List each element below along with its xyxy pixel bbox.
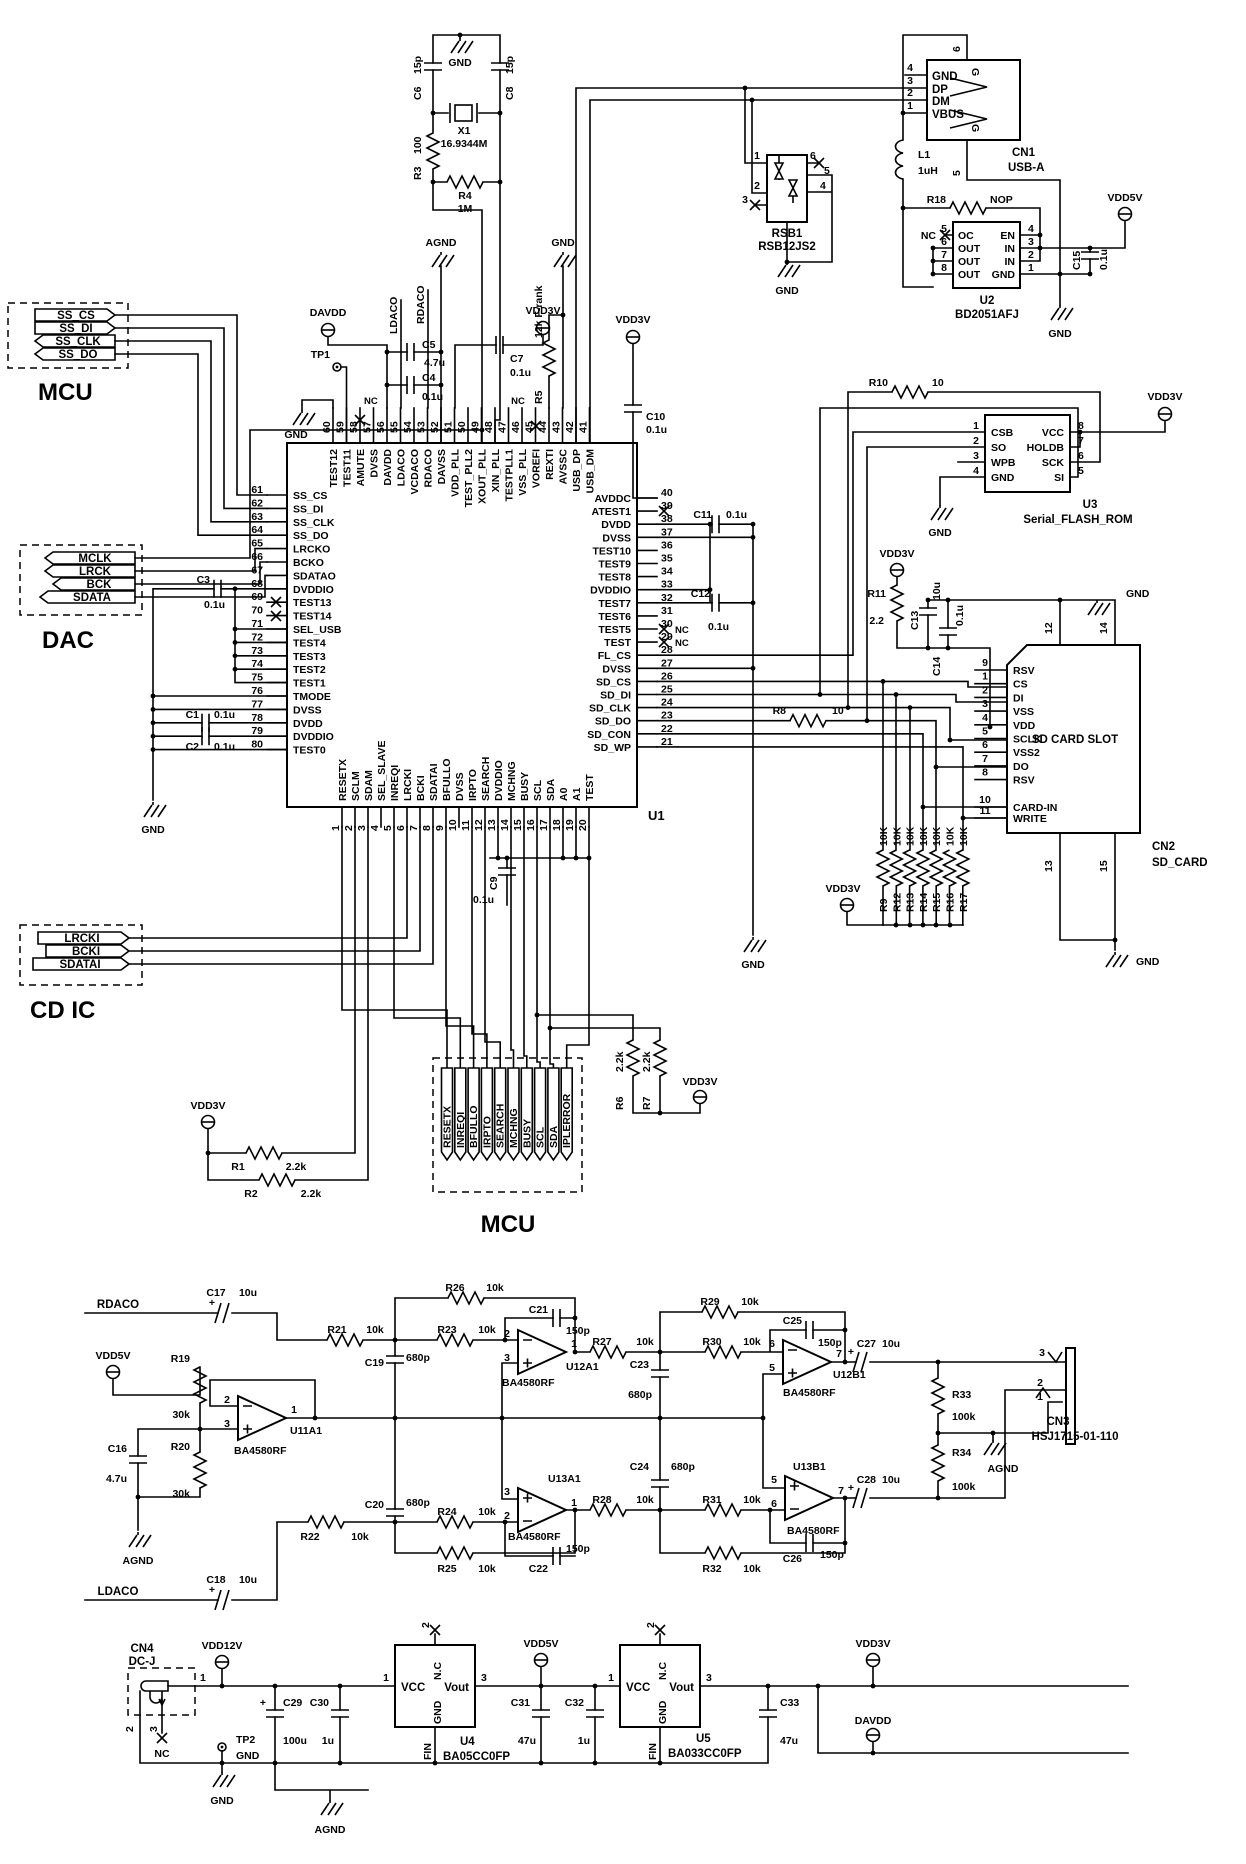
pin-name: SS_DO (293, 530, 329, 542)
ref-c16: C16 (108, 1443, 127, 1455)
pin-number: 56 (375, 421, 387, 433)
val-r18: NOP (990, 194, 1013, 206)
ref-r34: R34 (952, 1447, 971, 1459)
ref-r3: R3 (412, 166, 424, 180)
pin-name: RESETX (337, 759, 349, 801)
pin-name: AVSSC (558, 449, 570, 485)
agnd-label: AGND (426, 237, 457, 249)
pin-number: 6 (982, 739, 988, 751)
pin-number: 14 (499, 819, 511, 831)
pin-number: 11 (979, 805, 990, 817)
cap-c1 (202, 714, 209, 732)
pin-number: 17 (538, 819, 550, 831)
pullup-ref: R9 (878, 898, 890, 912)
val-r2: 2.2k (301, 1188, 322, 1200)
cap-c5 (407, 343, 414, 361)
pin-name: TEST2 (293, 664, 326, 676)
ref-r21: R21 (327, 1324, 346, 1336)
plus-c17: + (209, 1297, 215, 1309)
pullup-ref: R15 (931, 893, 943, 912)
val-r24: 10k (478, 1506, 496, 1518)
net-rdaco: RDACO (415, 286, 427, 325)
nc-label: NC (511, 396, 525, 407)
vdd3v-label: VDD3V (190, 1100, 225, 1112)
u1-bottom-pins: 1RESETX2SCLM3SDAM4SEL_SLAVE5INREQI6LRCKI… (330, 741, 596, 832)
ref-r2: R2 (244, 1188, 258, 1200)
ref-c20: C20 (365, 1499, 384, 1511)
pin-number: 42 (564, 421, 576, 433)
val-c28: 10u (882, 1474, 900, 1486)
pin-name: XIN_PLL (490, 448, 502, 492)
gnd-symbol (144, 802, 166, 817)
cn4-pin2: 2 (124, 1726, 136, 1732)
ref-r10: R10 (869, 377, 888, 389)
rsb1-body (767, 155, 807, 222)
ref-c24: C24 (630, 1461, 649, 1473)
agnd-symbol (432, 252, 454, 267)
tag-signal: IPLERROR (561, 1093, 573, 1148)
pin-number: 6 (771, 1498, 777, 1510)
pullup-resistor (930, 850, 942, 886)
pin-number: 1 (571, 1338, 577, 1350)
pin-name: TEST5 (598, 624, 631, 636)
val-r27: 10k (636, 1336, 654, 1348)
ref-r22: R22 (300, 1531, 319, 1543)
pin-name: TEST4 (293, 637, 326, 649)
plus-c28: + (848, 1482, 854, 1494)
pin-name: VDD (1013, 720, 1036, 732)
u1-right-pins: 40AVDDC39ATEST138DVDD37DVSS36TEST1035TES… (587, 487, 673, 754)
pin-name: REXTI (544, 449, 556, 480)
gnd-symbol (213, 1772, 235, 1787)
pullup-resistor (890, 850, 902, 886)
pin-number: 5 (382, 825, 394, 831)
opamp-ref: U13B1 (793, 1461, 826, 1473)
val-c7: 0.1u (510, 367, 531, 379)
cap-c3 (214, 580, 221, 598)
pullup-value: 10K (878, 826, 890, 846)
cap-c12 (712, 594, 719, 612)
resistor-r7 (654, 1040, 666, 1076)
pin-number: 13 (486, 819, 498, 831)
pullup-resistor (944, 850, 956, 886)
pin-name: MCHNG (506, 761, 518, 801)
pin-number: 4 (973, 465, 979, 477)
pin-name: DI (1013, 692, 1024, 704)
sd-pullup-array: 10KR910KR1210KR1310KR1410KR1510KR1610KR1… (877, 826, 970, 925)
pin-number: 40 (661, 487, 673, 499)
vdd3v-label: VDD3V (879, 548, 914, 560)
nc-label: NC (921, 230, 937, 242)
pin-number: 54 (402, 421, 414, 433)
resistor-r1 (246, 1147, 282, 1159)
pin-name: SEL_SLAVE (376, 741, 388, 802)
pin-name: SD_CON (587, 729, 631, 741)
tag-signal: RESETX (442, 1106, 454, 1148)
val-c4: 0.1u (422, 391, 443, 403)
pin-name: SCLM (350, 771, 362, 801)
ref-r30: R30 (702, 1336, 721, 1348)
tp1-testpoint (333, 363, 341, 371)
ref-c1: C1 (186, 709, 200, 721)
vdd3v-label: VDD3V (855, 1638, 890, 1650)
opamp-part: BA4580RF (783, 1387, 836, 1399)
tag-signal: SCL (535, 1126, 547, 1148)
u1-right-circuits: C11 0.1u C12 0.1u GND R8 10 R10 10 (657, 377, 1165, 971)
pin-number: 46 (510, 421, 522, 433)
tag-signal: BFULLO (468, 1105, 480, 1148)
pin-name: TEST13 (293, 597, 332, 609)
pin-number: 1 (1028, 262, 1034, 274)
pin-name: TEST10 (592, 545, 631, 557)
pullup-ref: R13 (905, 893, 917, 912)
resistor-r4 (447, 176, 483, 188)
pullup-value: 10K (918, 826, 930, 846)
cap-c22 (553, 1547, 560, 1565)
gnd-label: GND (448, 57, 472, 69)
cn1-gnd: GND (932, 71, 958, 83)
pin-number: 52 (429, 421, 441, 433)
ref-r28: R28 (592, 1494, 611, 1506)
vdd5v-flag (1119, 208, 1132, 221)
val-r11: 2.2 (869, 615, 884, 627)
cap-c33 (759, 1710, 777, 1717)
pin-number: 49 (470, 421, 482, 433)
ref-c26: C26 (783, 1553, 802, 1565)
ref-l1: L1 (918, 149, 930, 161)
u5-nc: N.C (657, 1662, 669, 1681)
val-c32: 1u (578, 1735, 590, 1747)
u5-n3: 3 (706, 1672, 712, 1684)
val-c6: 15p (412, 56, 424, 74)
cap-c20 (386, 1509, 404, 1516)
ref-r6: R6 (614, 1096, 626, 1110)
plus-c18: + (209, 1584, 215, 1596)
pin-name: TEST7 (598, 598, 631, 610)
tag-signal: IRPTO (481, 1116, 493, 1148)
pin-number: 5 (769, 1362, 775, 1374)
ref-c6: C6 (412, 86, 424, 100)
pin-name: TEST0 (293, 745, 326, 757)
pullup-value: 10K (958, 826, 970, 846)
resistor-r20 (194, 1452, 206, 1488)
u4-nc: N.C (432, 1662, 444, 1681)
pin-number: 2 (973, 435, 979, 447)
opamp-u13b1: 5 6 7 U13B1 BA4580RF (771, 1461, 844, 1537)
val-l1: 1uH (918, 165, 938, 177)
cap-c32 (586, 1710, 604, 1717)
cn1-pin5: 5 (951, 170, 963, 176)
pin-number: 58 (348, 421, 360, 433)
val-c18: 10u (239, 1574, 257, 1586)
cn1-pin4: 4 (907, 62, 913, 74)
val-x1: 16.9344M (441, 138, 488, 150)
pin-name: SS_DI (293, 503, 323, 515)
val-c12: 0.1u (708, 621, 729, 633)
agnd-symbol (984, 1440, 1006, 1455)
ref-r8: R8 (773, 705, 787, 717)
pin-name: ATEST1 (592, 506, 632, 518)
resistor-r33 (932, 1378, 944, 1414)
val-c33: 47u (780, 1735, 798, 1747)
pullup-ref: R12 (891, 893, 903, 912)
pin-name: IN (1005, 256, 1016, 268)
pin-name: VCDACO (409, 449, 421, 495)
ref-r29: R29 (700, 1296, 719, 1308)
gnd-label: GND (741, 959, 765, 971)
val-c11: 0.1u (726, 509, 747, 521)
val-c24: 680p (671, 1461, 695, 1473)
opamp-part: BA4580RF (508, 1531, 561, 1543)
mcu-top-connector: SS_CS SS_DI SS_CLK SS_DO MCU (8, 303, 267, 535)
cn2-pin14: 14 (1098, 622, 1110, 634)
u4-ref: U4 (460, 1736, 475, 1748)
ref-x1: X1 (458, 125, 471, 137)
pin-name: CSB (991, 427, 1014, 439)
pin-name: SO (991, 442, 1006, 454)
val-r30: 10k (743, 1336, 761, 1348)
tag-ss-do: SS_DO (59, 349, 98, 361)
nc-x-cn4 (157, 1733, 167, 1743)
cn1-dm: DM (932, 96, 950, 108)
pin-number: 34 (661, 566, 673, 578)
cap-c29 (266, 1710, 284, 1717)
pullup-value: 10K (905, 826, 917, 846)
val-c26: 150p (820, 1549, 844, 1561)
ref-c15: C15 (1071, 251, 1083, 270)
pin-name: SEL_USB (293, 624, 342, 636)
rsb1-diodes (775, 155, 797, 203)
val-c8: 15p (504, 56, 516, 74)
pin-name: DVDDIO (590, 585, 631, 597)
ref-c28: C28 (857, 1474, 876, 1486)
u4-vout: Vout (444, 1682, 469, 1694)
val-r8: 10 (832, 705, 844, 717)
rsb1-pin3: 3 (742, 194, 748, 206)
pin-name: LDACO (396, 449, 408, 486)
pin-number: 70 (251, 605, 263, 617)
val-r26: 10k (486, 1282, 504, 1294)
tag-lrcki: LRCKI (64, 933, 99, 945)
u4-vcc: VCC (401, 1682, 425, 1694)
cn1-shell-g-bottom: G (969, 124, 981, 132)
pin-number: 6 (1078, 450, 1084, 462)
gnd-label: GND (1048, 328, 1072, 340)
pin-name: DAVSS (436, 449, 448, 484)
ref-c12: C12 (691, 588, 710, 600)
u5-vcc: VCC (626, 1682, 650, 1694)
cdic-connector: LRCKI BCKI SDATAI CD IC (20, 827, 433, 1024)
pullup-resistor (904, 850, 916, 886)
pin-number: 51 (443, 421, 455, 433)
ref-c33: C33 (780, 1697, 799, 1709)
davdd-label: DAVDD (855, 1715, 892, 1727)
tag-lrck: LRCK (79, 566, 112, 578)
ref-c5: C5 (422, 339, 436, 351)
pin-name: SD_WP (594, 742, 631, 754)
plus-c27: + (848, 1346, 854, 1358)
cap-c21 (553, 1309, 560, 1327)
nc-label: NC (675, 638, 689, 649)
gnd-label: GND (1136, 956, 1160, 968)
cn1-shell-g-top: G (969, 68, 981, 76)
cn1-part: USB-A (1008, 162, 1044, 174)
vdd3v-flag (627, 331, 640, 344)
opamp-ref: U13A1 (548, 1473, 581, 1485)
opamp-part: BA4580RF (502, 1377, 555, 1389)
pin-name: HOLDB (1027, 442, 1065, 454)
gnd-label: GND (928, 527, 952, 539)
cap-c16 (129, 1456, 147, 1463)
val-c2: 0.1u (214, 741, 235, 753)
cn3-pin1: 1 (1037, 1391, 1043, 1403)
pin-number: 1 (973, 420, 979, 432)
val-r7: 2.2k (641, 1051, 653, 1072)
tp2-testpoint (218, 1743, 226, 1751)
u5-gnd: GND (657, 1700, 669, 1724)
pin-number: 3 (1028, 236, 1034, 248)
pin-number: 10 (447, 819, 459, 831)
pin-name: VSS_PLL (517, 448, 529, 495)
ref-c10: C10 (646, 411, 665, 423)
val-c19: 680p (406, 1352, 430, 1364)
pin-number: 8 (941, 262, 947, 274)
u1-left-pins: 61SS_CS62SS_DI63SS_CLK64SS_DO65LRCKO66BC… (251, 484, 342, 757)
ref-r19: R19 (171, 1353, 190, 1365)
val-r5: 12k F-rank (533, 285, 545, 338)
junction-dots (136, 33, 1118, 1766)
rsb1-pin2: 2 (754, 180, 760, 192)
cap-c2 (202, 727, 209, 745)
val-r28: 10k (636, 1494, 654, 1506)
pin-number: 1 (571, 1497, 577, 1509)
ref-c27: C27 (857, 1338, 876, 1350)
pin-name: TEST11 (342, 449, 354, 487)
pin-name: DAVDD (382, 449, 394, 486)
val-c22: 150p (566, 1543, 590, 1555)
cap-c11 (712, 515, 719, 533)
vdd12v-flag (216, 1656, 229, 1669)
ref-r31: R31 (702, 1494, 721, 1506)
rsb1-pin5: 5 (824, 165, 830, 177)
gnd-symbol (1051, 305, 1073, 320)
ref-c19: C19 (365, 1357, 384, 1369)
pin-number: 16 (525, 819, 537, 831)
pin-name: SD_DI (600, 690, 631, 702)
val-c27: 10u (882, 1338, 900, 1350)
pin-name: AVDDC (594, 493, 631, 505)
resistor-r32 (705, 1547, 741, 1559)
u4-part: BA05CC0FP (443, 1751, 510, 1763)
pin-name: A1 (571, 787, 583, 801)
gnd-label: GND (141, 824, 165, 836)
cap-c24 (651, 1480, 669, 1487)
cn4-pin3: 3 (148, 1726, 160, 1732)
cn1-pin2: 2 (907, 87, 913, 99)
cn1-dp: DP (932, 84, 948, 96)
u1-ref: U1 (648, 808, 665, 823)
ref-r20: R20 (171, 1441, 190, 1453)
pin-name: RDACO (423, 449, 435, 488)
ref-c30: C30 (310, 1697, 329, 1709)
resistor-r25 (437, 1547, 473, 1559)
u2-ref: U2 (980, 295, 995, 307)
u2-left-pins: 5OC6OUT7OUT8OUT (941, 223, 981, 281)
pin-name: WPB (991, 457, 1016, 469)
pin-number: 55 (389, 421, 401, 433)
pin-name: OUT (958, 256, 981, 268)
pin-name: A0 (558, 787, 570, 801)
rsb1-ref: RSB1 (772, 228, 803, 240)
vdd3v-label: VDD3V (682, 1076, 717, 1088)
resistor-r34 (932, 1445, 944, 1481)
u1-left-circuits: C3 0.1u C1 0.1u C2 0.1u GND (141, 574, 287, 836)
pin-number: 8 (982, 767, 988, 779)
u5-ref: U5 (696, 1733, 711, 1745)
val-r29: 10k (741, 1296, 759, 1308)
pin-name: DVDDIO (493, 760, 505, 801)
cn3-ref: CN3 (1046, 1416, 1069, 1428)
ref-c25: C25 (783, 1315, 802, 1327)
pin-name: DVSS (602, 663, 631, 675)
pin-name: FL_CS (598, 650, 631, 662)
ref-r11: R11 (867, 588, 886, 600)
agnd-label: AGND (988, 1463, 1019, 1475)
pin-number: 7 (1078, 435, 1084, 447)
pin-number: 18 (551, 819, 563, 831)
pullup-value: 10K (891, 826, 903, 846)
pin-number: 20 (577, 819, 589, 831)
opamp-u13a1: 3 2 1 U13A1 BA4580RF (504, 1473, 581, 1543)
pin-number: 12 (473, 819, 485, 831)
cap-c19 (386, 1356, 404, 1363)
resistor-r6 (627, 1040, 639, 1076)
u1-main-ic: U1 60TEST1259TEST1158AMUTE57DVSS56DAVDD5… (251, 396, 689, 831)
cn2-detect-pins: 10CARD-IN11WRITE (975, 794, 1057, 825)
vdd3v-label: VDD3V (1147, 391, 1182, 403)
cap-c9 (498, 868, 516, 875)
val-r4: 1M (458, 203, 473, 215)
pin-name: IRPTO (467, 769, 479, 801)
val-c29: 100u (283, 1735, 307, 1747)
pin-number: 7 (838, 1485, 844, 1497)
pin-name: WRITE (1013, 813, 1047, 825)
pin-number: 6 (769, 1338, 775, 1350)
pin-number: 15 (512, 819, 524, 831)
nc-label: NC (675, 625, 689, 636)
plus-c29: + (260, 1697, 266, 1709)
tag-sdatai: SDATAI (59, 959, 100, 971)
pullup-ref: R16 (945, 893, 957, 912)
davdd-flag (867, 1729, 880, 1742)
pin-number: 2 (1028, 249, 1034, 261)
pin-number: 3 (973, 450, 979, 462)
pin-name: OUT (958, 269, 981, 281)
cn1-pin1: 1 (907, 100, 913, 112)
ref-c32: C32 (565, 1697, 584, 1709)
cdic-label: CD IC (30, 997, 95, 1024)
pin-name: VCC (1042, 427, 1065, 439)
pin-number: 7 (982, 753, 988, 765)
cap-c14 (939, 628, 957, 635)
pin-name: SD_DO (595, 716, 631, 728)
net-ldaco: LDACO (388, 297, 400, 334)
val-r10: 10 (932, 377, 944, 389)
pin-name: RSV (1013, 665, 1035, 677)
val-c5: 4.7u (424, 357, 445, 369)
ref-r26: R26 (445, 1282, 464, 1294)
vdd5v-label: VDD5V (523, 1638, 558, 1650)
